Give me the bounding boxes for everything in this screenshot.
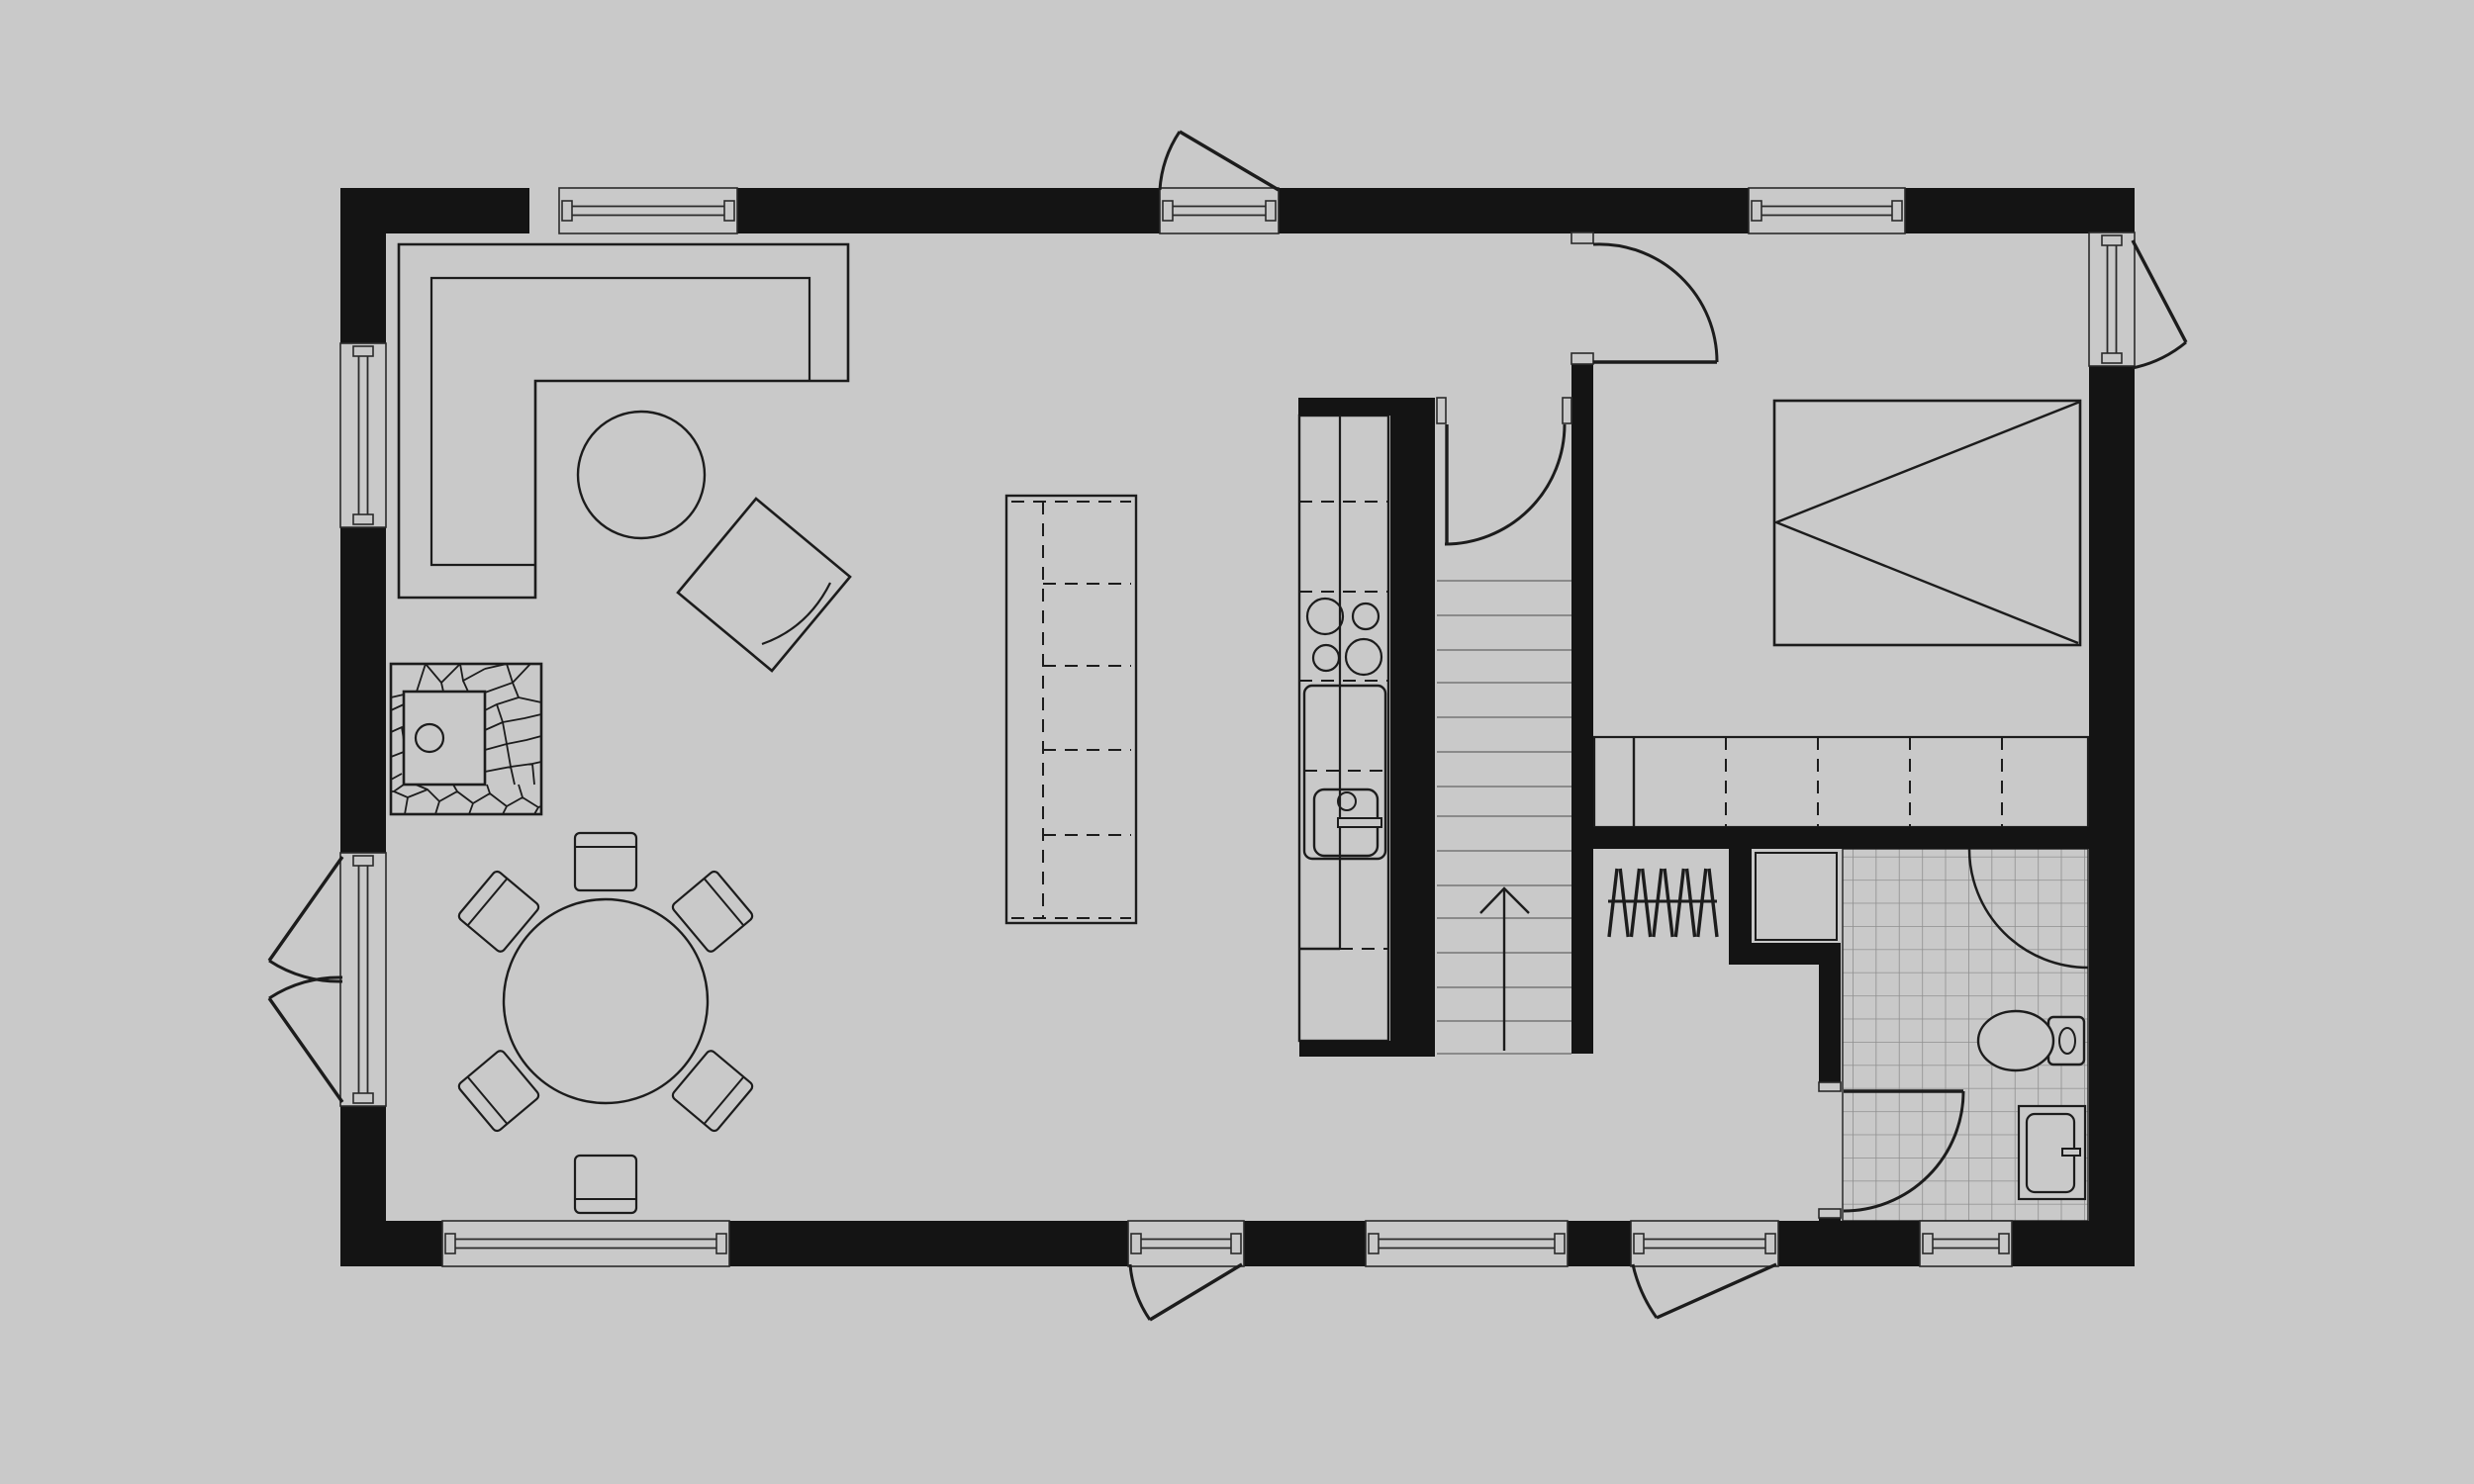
entry-door-opening-jamb — [1266, 201, 1276, 221]
window-living-top-frame — [559, 188, 737, 233]
wall-segment — [1778, 1221, 1920, 1266]
window-living-top-jamb — [724, 201, 734, 221]
french-door-opening-jamb — [353, 1093, 373, 1103]
terrace-door-opening-jamb — [1131, 1234, 1141, 1253]
dining-chair — [575, 1156, 636, 1213]
floorplan-drawing — [0, 0, 2474, 1484]
window-kitchen-bottom-jamb — [1555, 1234, 1565, 1253]
dining-chair-seat — [575, 833, 636, 890]
kitchen-counter — [1299, 416, 1388, 1041]
entry-door-opening-jamb — [1163, 201, 1173, 221]
wall-segment — [1279, 188, 1749, 233]
terrace-door2-opening-jamb — [1634, 1234, 1644, 1253]
door-jamb-block — [1819, 1209, 1841, 1218]
door-jamb-block — [1571, 232, 1593, 243]
wardrobe — [1594, 737, 2088, 827]
sink-faucet — [1338, 818, 1381, 827]
window-living-left-frame — [340, 343, 386, 527]
window-bath-bottom-jamb — [1923, 1234, 1933, 1253]
terrace-door-opening — [1128, 1221, 1244, 1266]
window-bath-bottom — [1920, 1221, 2012, 1266]
window-dining-bottom-jamb — [716, 1234, 726, 1253]
window-living-top-jamb — [562, 201, 572, 221]
window-bath-bottom-frame — [1920, 1221, 2012, 1266]
dining-chair-seat — [575, 1156, 636, 1213]
wall-segment — [1729, 943, 1841, 965]
door-jamb-block — [1437, 398, 1446, 423]
wall-segment — [1819, 965, 1841, 1091]
door-jamb-block — [1819, 1082, 1841, 1091]
wall-segment — [340, 1106, 386, 1221]
door-jamb-block — [1571, 353, 1593, 364]
balcony-door-opening-jamb — [2102, 353, 2122, 363]
floorplan-page — [0, 0, 2474, 1484]
wall-segment — [340, 188, 529, 233]
wall-segment — [2089, 366, 2135, 1221]
window-bedroom-top — [1749, 188, 1905, 233]
window-bedroom-top-frame — [1749, 188, 1905, 233]
french-door-opening — [340, 853, 386, 1106]
window-dining-bottom-frame — [442, 1221, 729, 1266]
window-dining-bottom — [442, 1221, 729, 1266]
wall-segment — [729, 1221, 1128, 1266]
window-living-left-jamb — [353, 514, 373, 524]
window-dining-bottom-jamb — [445, 1234, 455, 1253]
window-kitchen-bottom — [1366, 1221, 1568, 1266]
toilet-bowl — [1978, 1011, 2053, 1070]
dining-table — [504, 899, 708, 1103]
wall-segment — [1244, 1221, 1366, 1266]
balcony-door-opening — [2089, 232, 2135, 366]
door-jamb-block — [1563, 398, 1571, 423]
terrace-door-opening-frame — [1128, 1221, 1244, 1266]
terrace-door-opening-jamb — [1231, 1234, 1241, 1253]
wall-segment — [340, 233, 386, 343]
french-door-opening-jamb — [353, 856, 373, 866]
window-kitchen-bottom-jamb — [1369, 1234, 1379, 1253]
entry-door-opening — [1160, 188, 1279, 233]
french-door-opening-frame — [340, 853, 386, 1106]
window-bedroom-top-jamb — [1752, 201, 1761, 221]
bath-sink-tap — [2062, 1149, 2080, 1156]
wall-segment — [340, 1221, 442, 1266]
wall-segment — [1593, 827, 2089, 849]
terrace-door2-opening — [1631, 1221, 1778, 1266]
wall-segment — [340, 527, 386, 853]
terrace-door2-opening-frame — [1631, 1221, 1778, 1266]
window-bath-bottom-jamb — [1999, 1234, 2009, 1253]
window-bedroom-top-jamb — [1892, 201, 1902, 221]
wall-segment — [1905, 188, 2135, 233]
wall-segment — [1571, 364, 1593, 1054]
wall-segment — [1390, 398, 1435, 1057]
window-living-left — [340, 343, 386, 527]
entry-door-opening-frame — [1160, 188, 1279, 233]
balcony-door-opening-jamb — [2102, 235, 2122, 245]
wall-segment — [1568, 1221, 1631, 1266]
wall-segment — [737, 188, 1160, 233]
wall-segment — [1299, 1041, 1390, 1057]
window-living-top — [559, 188, 737, 233]
terrace-door2-opening-jamb — [1765, 1234, 1775, 1253]
balcony-door-opening-frame — [2089, 232, 2135, 366]
window-kitchen-bottom-frame — [1366, 1221, 1568, 1266]
wall-segment — [2012, 1221, 2135, 1266]
window-living-left-jamb — [353, 346, 373, 356]
dining-chair — [575, 833, 636, 890]
